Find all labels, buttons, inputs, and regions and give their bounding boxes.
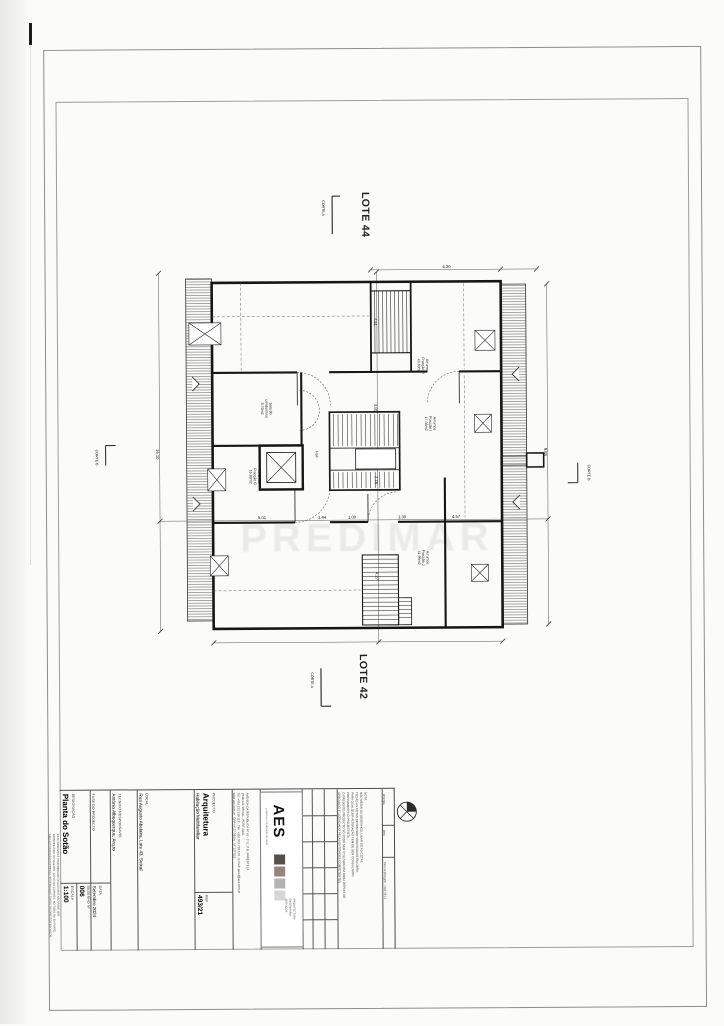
svg-text:4.27: 4.27: [374, 572, 379, 581]
data-label: DATA: [97, 886, 103, 951]
floor-plan: Arrumos Fracção H 43.60m2 Arrumos Fracçã…: [148, 257, 560, 654]
data-value: Setembro 2024: [90, 886, 97, 951]
logo-caption: ARQUITECTURA ENGENHARIA SERVIÇOS: [283, 898, 295, 944]
field-fase: FASE DO PROJECTO: [90, 791, 111, 883]
field-desenho-numero: DESENHO Nº 006: [76, 883, 90, 951]
local-label: LOCAL: [143, 793, 149, 950]
stair-bottom: [362, 555, 411, 625]
svg-text:2.78: 2.78: [374, 476, 379, 485]
logo-color-square: [274, 866, 285, 876]
logo-text: AES: [270, 804, 287, 852]
svg-text:43.60m2: 43.60m2: [417, 359, 421, 373]
corte-a-label: CORTE A: [321, 200, 325, 216]
field-local: LOCAL Rua Augusto Abelaira, Lote 43, Sei…: [137, 790, 195, 950]
lote-44-label: LOTE 44: [359, 192, 371, 242]
corte-b-marker-right: CORTE B: [564, 461, 594, 503]
svg-text:16.80m2: 16.80m2: [249, 470, 253, 484]
desenho-value: 006: [76, 886, 85, 951]
field-projecto: PROJECTO Arquitetura Habitação Multifami…: [194, 790, 233, 892]
designacao-value: Planta do Sotão: [60, 794, 71, 883]
svg-text:1.00: 1.00: [348, 515, 357, 520]
projecto-value1: Arquitetura: [200, 793, 211, 892]
escala-label: ESCALA: [69, 886, 75, 951]
field-ref: REF 493/21: [194, 892, 232, 950]
field-designacao: DESIGNAÇÃO Planta do Sotão: [60, 791, 91, 883]
escala-value: 1:100: [60, 886, 69, 951]
field-tecnico: TECNICO RESPONSAVEL António Albuquerque,…: [110, 790, 138, 950]
corte-a-label: CORTE A: [310, 672, 314, 688]
corte-a-marker-bottom: CORTE A: [299, 666, 335, 710]
drawing-sheet: PREDIMAR LOTE 44 LOTE 42 CORTE A CORTE A…: [0, 0, 724, 1026]
svg-text:9.85: 9.85: [543, 448, 548, 457]
svg-text:4.30: 4.30: [442, 264, 451, 269]
projecto-label: PROJECTO: [210, 793, 216, 892]
stair-main: [329, 412, 399, 490]
ref-label: REF: [203, 895, 209, 950]
elevator-shaft: [260, 445, 303, 489]
corte-b-label: CORTE B: [95, 450, 99, 467]
logo-tagline: projectos e fiscalização de obras: [264, 809, 268, 879]
corte-a-marker-top: CORTE A: [312, 194, 342, 238]
svg-text:3.85: 3.85: [373, 404, 378, 413]
skylights: [189, 321, 497, 583]
field-escala: ESCALA 1:100: [60, 883, 76, 951]
dashed-guide-lines: [212, 281, 466, 591]
svg-text:8.70m2: 8.70m2: [260, 403, 264, 415]
data-header: data: [382, 827, 394, 855]
ref-value: 493/21: [194, 895, 203, 950]
fase-label: FASE DO PROJECTO: [90, 794, 96, 883]
svg-text:4.51: 4.51: [373, 318, 378, 327]
svg-text:1.30: 1.30: [398, 514, 407, 519]
logo-color-square: [274, 878, 285, 888]
logo-color-square: [274, 854, 285, 864]
svg-text:Hall: Hall: [315, 451, 319, 457]
plot-date: Data de plotagem : 2024-09-11: [382, 859, 395, 947]
field-data: DATA Setembro 2024: [90, 883, 110, 951]
tecnico-label: TECNICO RESPONSAVEL: [116, 793, 122, 950]
emenda-header: emenda: [382, 791, 394, 823]
svg-text:16.10: 16.10: [155, 449, 160, 460]
corte-b-marker-left: CORTE B: [90, 443, 120, 485]
company-logo: AES projectos e fiscalização de obras AR…: [260, 791, 304, 947]
local-value: Rua Augusto Abelaira, Lote 43, Seixal: [137, 793, 144, 950]
north-arrow-icon: [396, 801, 420, 825]
nota-block: NOTA: NÃO MEDIR OS DESENHOS, USAR SÓ AS …: [337, 789, 383, 949]
designacao-label: DESIGNAÇÃO: [70, 794, 76, 883]
company-address: AVENIDA DA REPUBLICA Nº 61 - 1º E 1º B, …: [232, 790, 261, 950]
projecto-value2: Habitação Multifamiliar: [194, 793, 201, 892]
svg-text:17.35m2: 17.35m2: [424, 417, 428, 431]
corte-b-label: CORTE B: [587, 465, 591, 482]
tecnico-value: António Albuquerque, Arq.to: [110, 794, 117, 951]
revision-grid: [302, 789, 338, 949]
svg-text:1.44: 1.44: [318, 515, 327, 520]
title-block: DESIGNAÇÃO Planta do Sotão ESCALA 1:100 …: [60, 788, 396, 951]
svg-text:41.95m2: 41.95m2: [417, 551, 421, 565]
lote-42-label: LOTE 42: [357, 654, 369, 704]
copyright-disclaimer: ESTE DESENHO É PROPRIEDADE DO AUTOR E NÃ…: [46, 834, 60, 1010]
svg-text:4.57: 4.57: [452, 514, 461, 519]
svg-text:5.01: 5.01: [258, 515, 267, 520]
